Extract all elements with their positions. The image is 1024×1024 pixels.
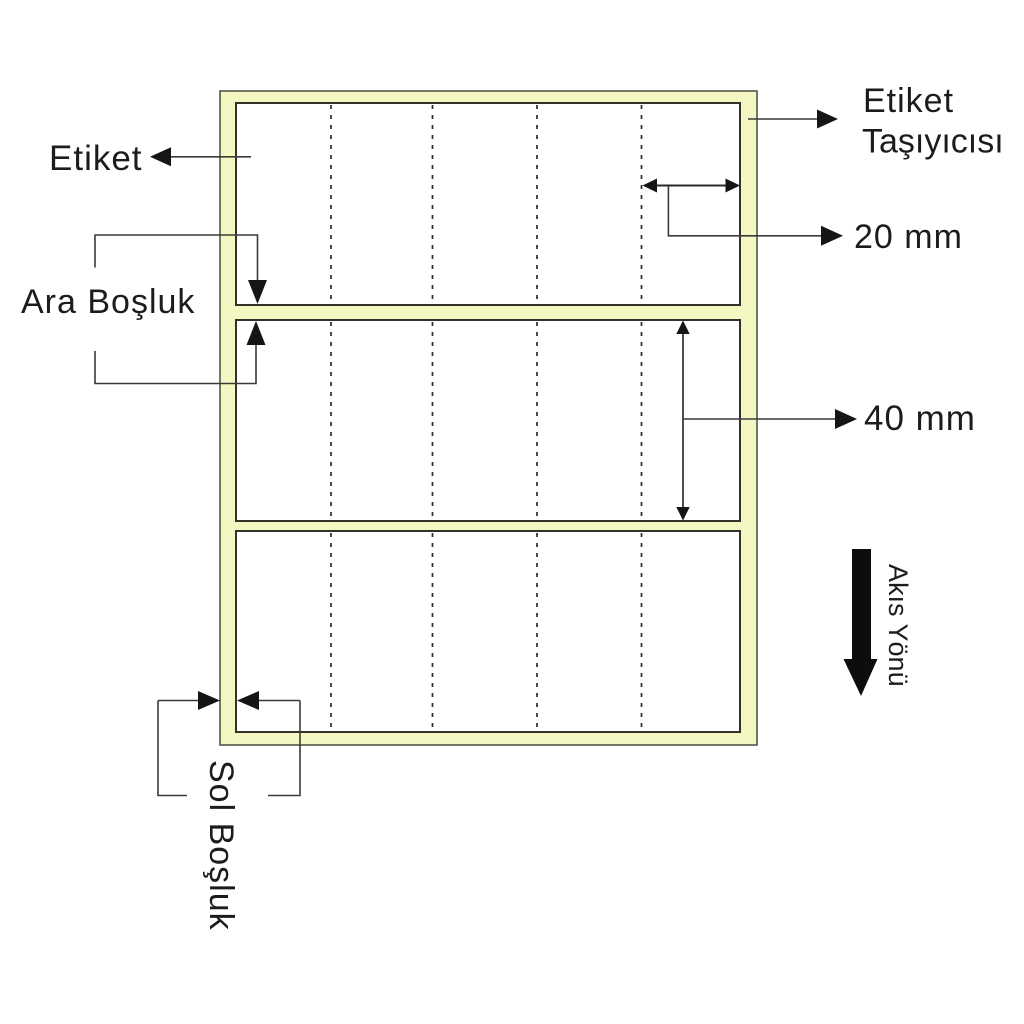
svg-text:Sol Boşluk: Sol Boşluk	[202, 760, 240, 931]
svg-text:Etiket: Etiket	[49, 139, 143, 178]
svg-text:Ara Boşluk: Ara Boşluk	[21, 283, 195, 321]
svg-text:40 mm: 40 mm	[864, 399, 976, 438]
svg-text:20 mm: 20 mm	[854, 218, 963, 256]
svg-text:Taşıyıcısı: Taşıyıcısı	[862, 123, 1004, 161]
svg-text:Etiket: Etiket	[863, 82, 954, 120]
svg-text:Akıs Yönü: Akıs Yönü	[883, 564, 913, 687]
